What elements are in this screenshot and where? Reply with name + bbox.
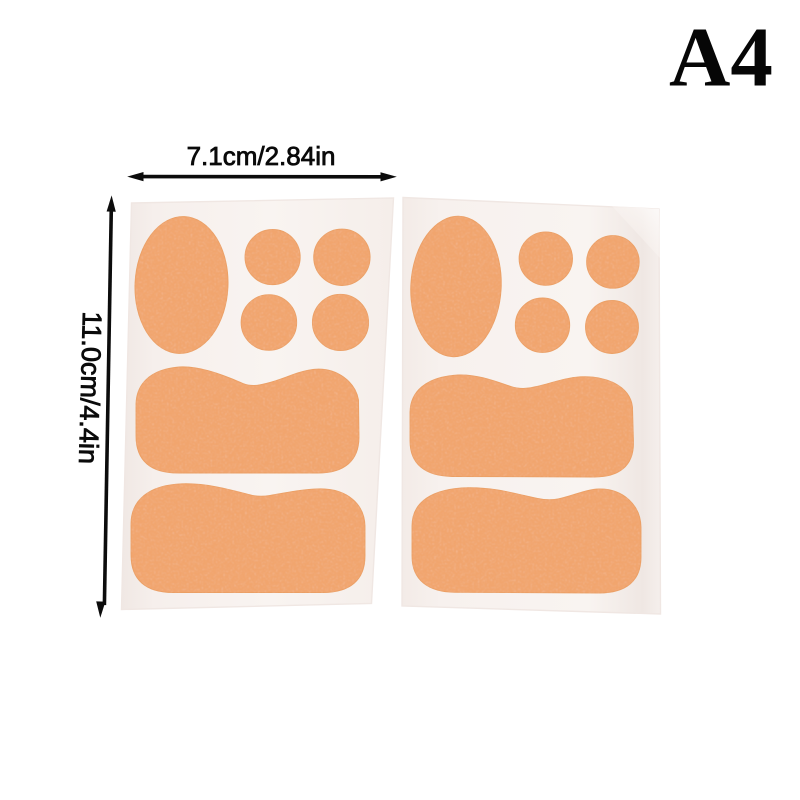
svg-text:A4: A4 xyxy=(669,11,773,105)
svg-text:11.0cm/4.4in: 11.0cm/4.4in xyxy=(73,311,107,464)
svg-text:7.1cm/2.84in: 7.1cm/2.84in xyxy=(187,141,336,171)
